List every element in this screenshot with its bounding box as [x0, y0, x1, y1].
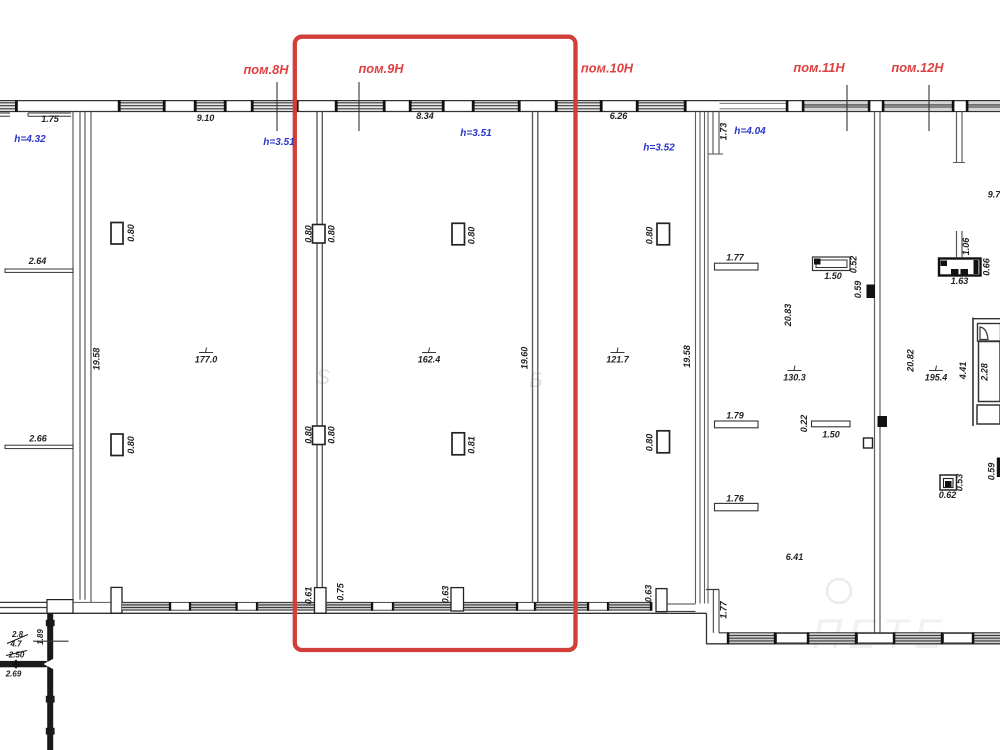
svg-text:0.80: 0.80	[126, 436, 136, 454]
svg-text:1.75: 1.75	[41, 114, 60, 124]
svg-text:2.69: 2.69	[5, 670, 22, 679]
svg-text:пом.10Н: пом.10Н	[581, 61, 634, 76]
svg-text:0.80: 0.80	[327, 225, 337, 243]
svg-text:9.7: 9.7	[988, 190, 1000, 200]
svg-text:1.77: 1.77	[726, 253, 745, 263]
svg-text:1.89: 1.89	[36, 629, 45, 645]
svg-text:0.52: 0.52	[849, 256, 859, 274]
svg-text:9.10: 9.10	[197, 113, 215, 123]
svg-text:20.83: 20.83	[783, 304, 793, 328]
svg-text:0.80: 0.80	[467, 227, 477, 245]
svg-text:0.59: 0.59	[987, 463, 997, 481]
svg-text:пом.8Н: пом.8Н	[243, 62, 289, 77]
svg-text:h=3.51: h=3.51	[460, 128, 492, 139]
svg-text:1.77: 1.77	[719, 600, 729, 619]
svg-text:0.80: 0.80	[327, 426, 337, 444]
svg-text:1.76: 1.76	[726, 494, 745, 504]
svg-text:195.4: 195.4	[925, 373, 948, 383]
svg-text:19.58: 19.58	[92, 348, 102, 371]
svg-text:2.28: 2.28	[980, 363, 990, 382]
svg-text:0.80: 0.80	[304, 225, 314, 243]
svg-text:19.60: 19.60	[520, 347, 530, 370]
svg-text:130.3: 130.3	[783, 373, 806, 383]
svg-text:пом.12Н: пом.12Н	[891, 60, 944, 75]
svg-text:2.64: 2.64	[28, 256, 47, 266]
svg-text:h=3.52: h=3.52	[643, 143, 675, 154]
svg-text:1.50: 1.50	[824, 271, 842, 281]
svg-text:S: S	[316, 366, 330, 389]
svg-text:2.50: 2.50	[8, 651, 25, 660]
svg-text:177.0: 177.0	[195, 355, 218, 365]
svg-text:0.22: 0.22	[799, 415, 809, 433]
svg-text:4.7: 4.7	[9, 640, 22, 649]
svg-text:121.7: 121.7	[606, 355, 630, 365]
svg-text:8.34: 8.34	[416, 111, 434, 121]
svg-text:0.80: 0.80	[645, 434, 655, 452]
svg-text:0.63: 0.63	[441, 586, 451, 604]
svg-text:0.75: 0.75	[336, 582, 346, 601]
svg-text:пом.11Н: пом.11Н	[793, 60, 845, 75]
svg-text:0.80: 0.80	[645, 227, 655, 245]
svg-text:0.53: 0.53	[955, 474, 965, 492]
svg-text:0.81: 0.81	[467, 436, 477, 454]
svg-text:0.66: 0.66	[982, 257, 992, 276]
svg-text:1.79: 1.79	[726, 411, 744, 421]
svg-text:0.80: 0.80	[126, 224, 136, 242]
svg-text:6.41: 6.41	[786, 552, 804, 562]
svg-text:0.61: 0.61	[304, 587, 314, 605]
svg-text:1.63: 1.63	[951, 276, 969, 286]
svg-text:Б: Б	[529, 369, 543, 392]
svg-text:6.26: 6.26	[610, 111, 629, 121]
svg-text:162.4: 162.4	[418, 355, 441, 365]
svg-text:0.80: 0.80	[304, 426, 314, 444]
svg-text:1.50: 1.50	[822, 430, 840, 440]
svg-text:пом.9Н: пом.9Н	[358, 61, 404, 76]
svg-text:0.59: 0.59	[853, 281, 863, 299]
svg-text:0.63: 0.63	[644, 585, 654, 603]
svg-text:20.82: 20.82	[906, 349, 916, 373]
svg-text:h=3.51: h=3.51	[263, 137, 295, 148]
svg-text:1.06: 1.06	[961, 237, 971, 256]
svg-text:1.73: 1.73	[719, 123, 729, 141]
svg-text:h=4.04: h=4.04	[734, 126, 766, 137]
svg-text:4.41: 4.41	[958, 362, 968, 381]
svg-text:h=4.32: h=4.32	[14, 134, 46, 145]
svg-text:19.58: 19.58	[682, 345, 692, 368]
svg-text:2.66: 2.66	[28, 434, 48, 444]
